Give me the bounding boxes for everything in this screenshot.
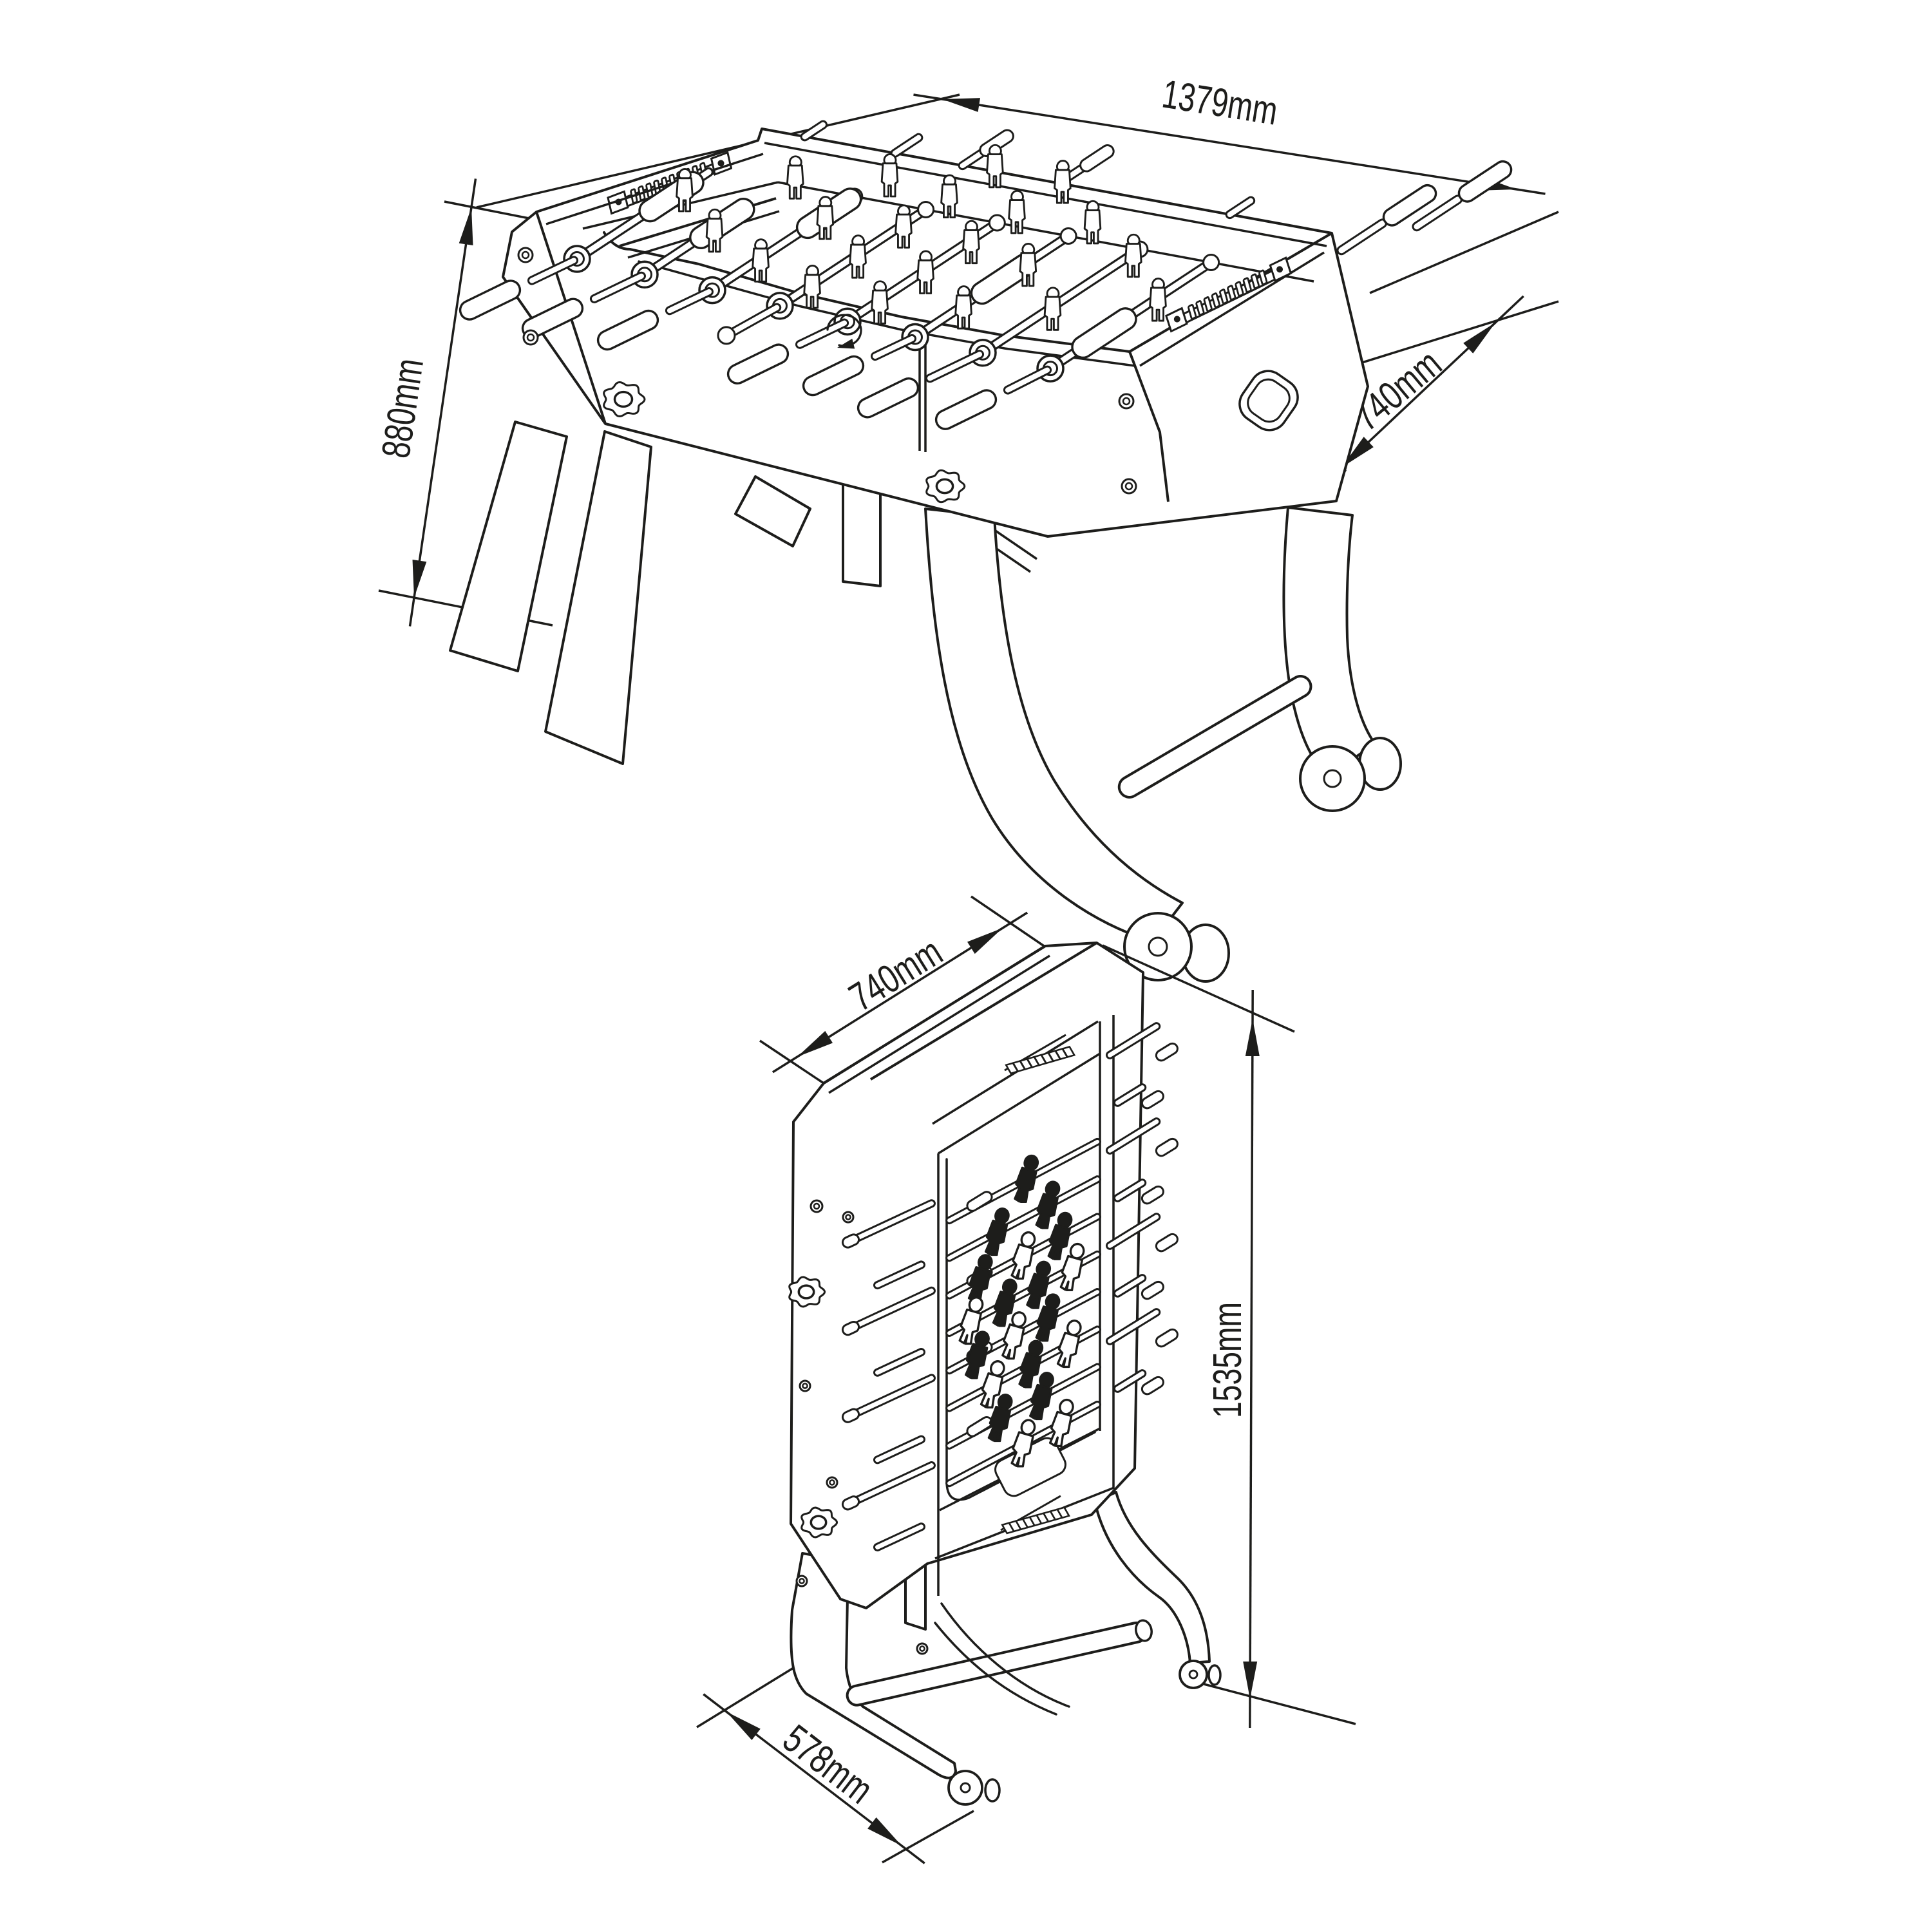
svg-text:1535mm: 1535mm	[1206, 1302, 1250, 1418]
